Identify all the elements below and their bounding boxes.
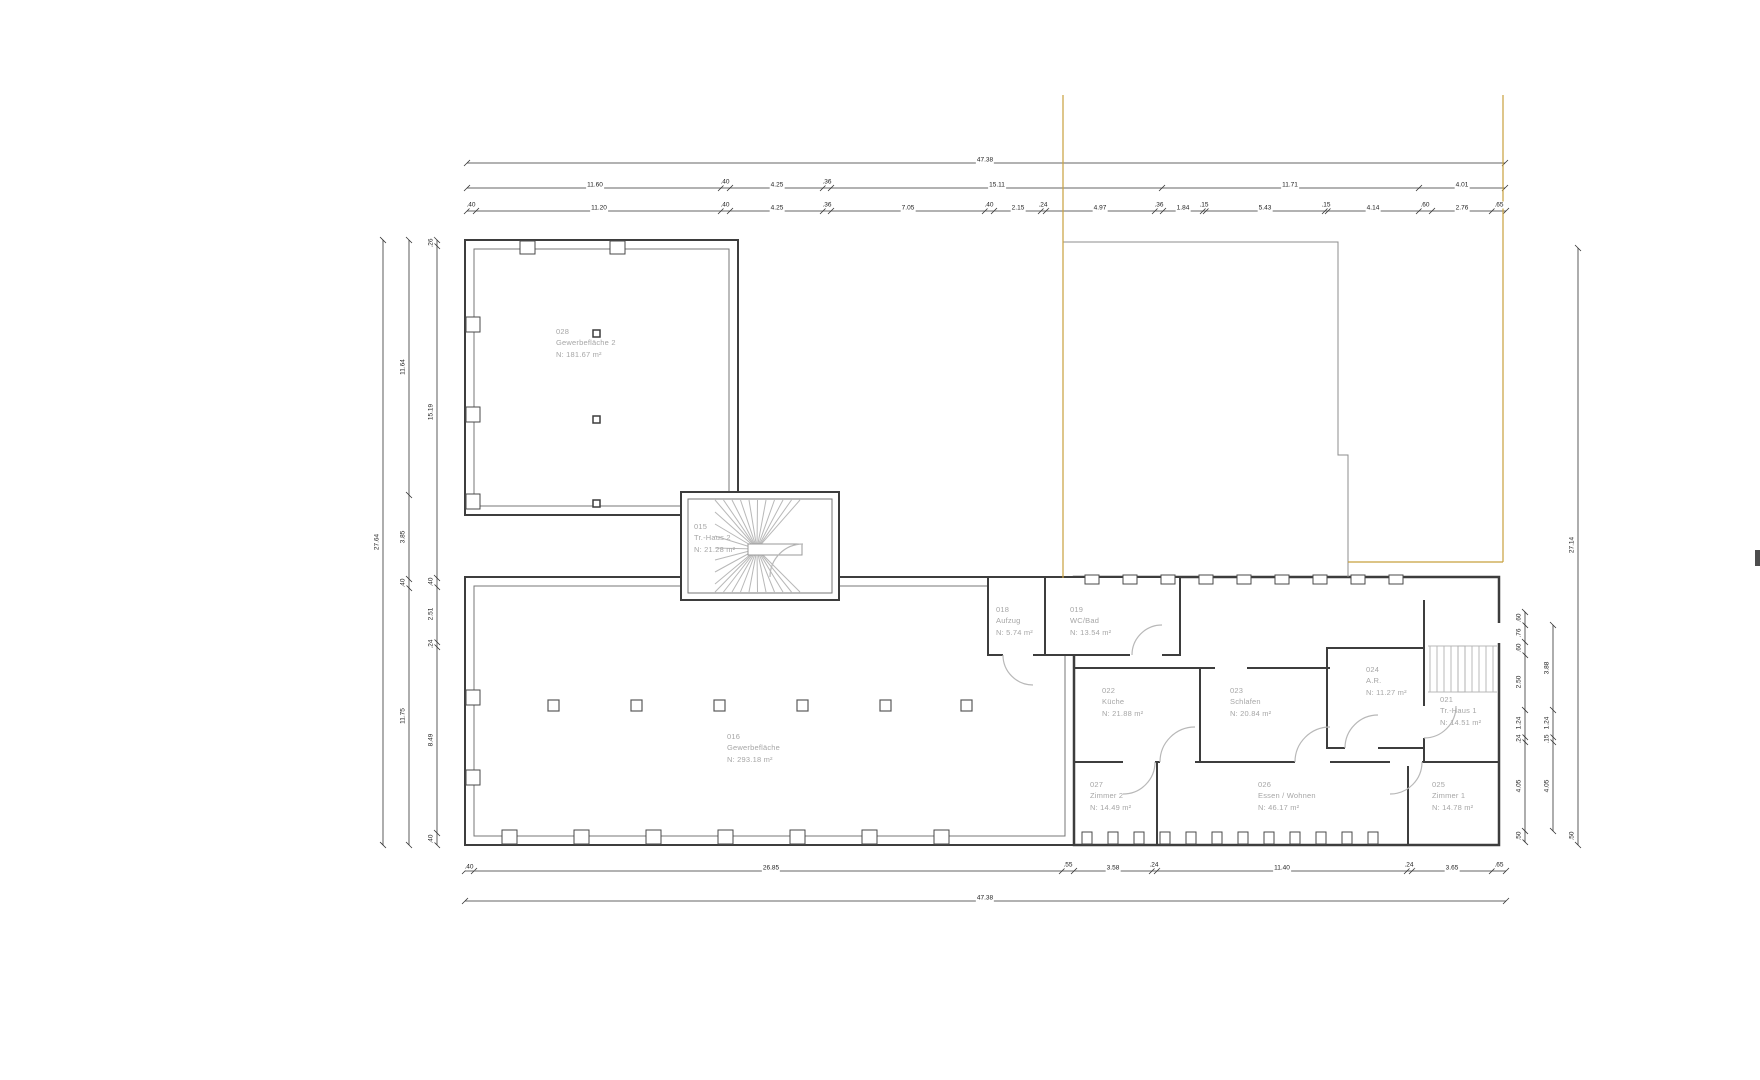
dimension-label: .40 bbox=[463, 864, 474, 871]
walls bbox=[465, 240, 1499, 845]
room-id-text: 023 bbox=[1230, 685, 1271, 696]
room-name-text: Gewerbefläche 2 bbox=[556, 337, 616, 348]
dimension-label: .60 bbox=[1516, 612, 1523, 623]
floor-plan-drawing bbox=[0, 0, 1760, 1080]
dimension-label: .36 bbox=[821, 202, 832, 209]
dimension-label: .60 bbox=[1419, 202, 1430, 209]
dimension-label: .15 bbox=[1544, 733, 1551, 744]
dimension-label: 4.01 bbox=[1455, 182, 1470, 189]
room-label-018: 018AufzugN: 5.74 m² bbox=[996, 604, 1033, 638]
dimension-label: .24 bbox=[1037, 202, 1048, 209]
room-area-text: N: 13.54 m² bbox=[1070, 627, 1111, 638]
dimension-label: .76 bbox=[1516, 627, 1523, 638]
room-name-text: Zimmer 2 bbox=[1090, 790, 1131, 801]
dimension-label: 27.64 bbox=[374, 533, 381, 551]
room-area-text: N: 14.51 m² bbox=[1440, 717, 1481, 728]
dimension-label: 26.85 bbox=[762, 865, 780, 872]
room-label-028: 028Gewerbefläche 2N: 181.67 m² bbox=[556, 326, 616, 360]
room-name-text: Zimmer 1 bbox=[1432, 790, 1473, 801]
room-id-text: 025 bbox=[1432, 779, 1473, 790]
dimension-label: 7.05 bbox=[901, 205, 916, 212]
dimension-label: .50 bbox=[1569, 830, 1576, 841]
dimension-label: 3.88 bbox=[1544, 661, 1551, 676]
dimension-label: 11.20 bbox=[590, 205, 608, 212]
room-label-015: 015Tr.-Haus 2N: 21.28 m² bbox=[694, 521, 735, 555]
room-name-text: Tr.-Haus 1 bbox=[1440, 705, 1481, 716]
dimension-label: .65 bbox=[1493, 862, 1504, 869]
dimension-label: 5.43 bbox=[1258, 205, 1273, 212]
dimension-label: 11.75 bbox=[400, 707, 407, 725]
room-id-text: 026 bbox=[1258, 779, 1316, 790]
room-area-text: N: 5.74 m² bbox=[996, 627, 1033, 638]
room-label-021: 021Tr.-Haus 1N: 14.51 m² bbox=[1440, 694, 1481, 728]
dimension-label: .26 bbox=[428, 237, 435, 248]
dimension-label: .24 bbox=[1516, 733, 1523, 744]
dimension-label: 1.24 bbox=[1544, 716, 1551, 731]
room-name-text: Essen / Wohnen bbox=[1258, 790, 1316, 801]
reference-lines bbox=[1063, 95, 1503, 578]
dimension-label: 4.05 bbox=[1516, 779, 1523, 794]
room-id-text: 022 bbox=[1102, 685, 1143, 696]
room-name-text: Küche bbox=[1102, 696, 1143, 707]
scrollbar-thumb[interactable] bbox=[1755, 550, 1760, 566]
room-id-text: 028 bbox=[556, 326, 616, 337]
dimension-label: .24 bbox=[1148, 862, 1159, 869]
dimension-label: .24 bbox=[1403, 862, 1414, 869]
adjacent-building-outline bbox=[1063, 242, 1348, 577]
dimension-label: 1.84 bbox=[1176, 205, 1191, 212]
dimension-label: .40 bbox=[719, 202, 730, 209]
dimension-label: 4.05 bbox=[1544, 779, 1551, 794]
room-area-text: N: 11.27 m² bbox=[1366, 687, 1407, 698]
room-label-026: 026Essen / WohnenN: 46.17 m² bbox=[1258, 779, 1316, 813]
room-area-text: N: 293.18 m² bbox=[727, 754, 780, 765]
room-area-text: N: 21.28 m² bbox=[694, 544, 735, 555]
room-id-text: 021 bbox=[1440, 694, 1481, 705]
room-name-text: Aufzug bbox=[996, 615, 1033, 626]
room-label-027: 027Zimmer 2N: 14.49 m² bbox=[1090, 779, 1131, 813]
room-label-025: 025Zimmer 1N: 14.78 m² bbox=[1432, 779, 1473, 813]
dimension-label: 2.50 bbox=[1516, 675, 1523, 690]
dimension-label: 3.65 bbox=[1445, 865, 1460, 872]
dimension-label: .50 bbox=[1516, 830, 1523, 841]
room-area-text: N: 46.17 m² bbox=[1258, 802, 1316, 813]
dimension-label: 2.76 bbox=[1455, 205, 1470, 212]
room-label-016: 016GewerbeflächeN: 293.18 m² bbox=[727, 731, 780, 765]
room-id-text: 015 bbox=[694, 521, 735, 532]
room-id-text: 016 bbox=[727, 731, 780, 742]
dimension-label: 47.38 bbox=[976, 157, 994, 164]
dimension-label: 4.97 bbox=[1093, 205, 1108, 212]
room-area-text: N: 21.88 m² bbox=[1102, 708, 1143, 719]
dimension-label: .36 bbox=[1153, 202, 1164, 209]
dimension-label: .15 bbox=[1198, 202, 1209, 209]
room-id-text: 024 bbox=[1366, 664, 1407, 675]
room-label-022: 022KücheN: 21.88 m² bbox=[1102, 685, 1143, 719]
dimension-label: 4.25 bbox=[770, 205, 785, 212]
dimension-label: .65 bbox=[1493, 202, 1504, 209]
dimension-label: 11.40 bbox=[1273, 865, 1291, 872]
dimension-label: 4.14 bbox=[1366, 205, 1381, 212]
dimension-label: 27.14 bbox=[1569, 536, 1576, 554]
room-name-text: Tr.-Haus 2 bbox=[694, 532, 735, 543]
dimension-label: 3.58 bbox=[1106, 865, 1121, 872]
dimension-label: 15.11 bbox=[988, 182, 1006, 189]
room-label-024: 024A.R.N: 11.27 m² bbox=[1366, 664, 1407, 698]
dimension-label: .40 bbox=[465, 202, 476, 209]
dimension-label: .15 bbox=[1320, 202, 1331, 209]
room-area-text: N: 20.84 m² bbox=[1230, 708, 1271, 719]
room-area-text: N: 14.49 m² bbox=[1090, 802, 1131, 813]
dimension-label: 4.25 bbox=[770, 182, 785, 189]
dimension-label: .24 bbox=[428, 638, 435, 649]
room-name-text: Schlafen bbox=[1230, 696, 1271, 707]
dimension-label: .40 bbox=[428, 833, 435, 844]
dimension-label: .40 bbox=[400, 577, 407, 588]
room-id-text: 027 bbox=[1090, 779, 1131, 790]
dimension-label: 2.51 bbox=[428, 607, 435, 622]
room-name-text: WC/Bad bbox=[1070, 615, 1111, 626]
room-label-019: 019WC/BadN: 13.54 m² bbox=[1070, 604, 1111, 638]
dimension-label: .55 bbox=[1062, 862, 1073, 869]
dimension-label: 11.71 bbox=[1281, 182, 1299, 189]
dimension-label: 47.38 bbox=[976, 895, 994, 902]
room-area-text: N: 14.78 m² bbox=[1432, 802, 1473, 813]
dimension-label: 8.49 bbox=[428, 733, 435, 748]
room-id-text: 019 bbox=[1070, 604, 1111, 615]
dimension-label: .60 bbox=[1516, 642, 1523, 653]
dimension-label: .40 bbox=[428, 576, 435, 587]
room-name-text: Gewerbefläche bbox=[727, 742, 780, 753]
dimension-label: 2.15 bbox=[1011, 205, 1026, 212]
room-area-text: N: 181.67 m² bbox=[556, 349, 616, 360]
dimension-label: .40 bbox=[719, 179, 730, 186]
dimension-label: 1.24 bbox=[1516, 716, 1523, 731]
dimension-label: 3.85 bbox=[400, 530, 407, 545]
dimension-label: .40 bbox=[983, 202, 994, 209]
dimension-label: 15.19 bbox=[428, 403, 435, 421]
stair-021-rail bbox=[1458, 646, 1465, 692]
dimension-label: .36 bbox=[821, 179, 832, 186]
room-id-text: 018 bbox=[996, 604, 1033, 615]
dimension-label: 11.64 bbox=[400, 358, 407, 376]
room-name-text: A.R. bbox=[1366, 675, 1407, 686]
dimension-label: 11.60 bbox=[586, 182, 604, 189]
room-label-023: 023SchlafenN: 20.84 m² bbox=[1230, 685, 1271, 719]
floor-plan-canvas: 028Gewerbefläche 2N: 181.67 m²015Tr.-Hau… bbox=[0, 0, 1760, 1080]
